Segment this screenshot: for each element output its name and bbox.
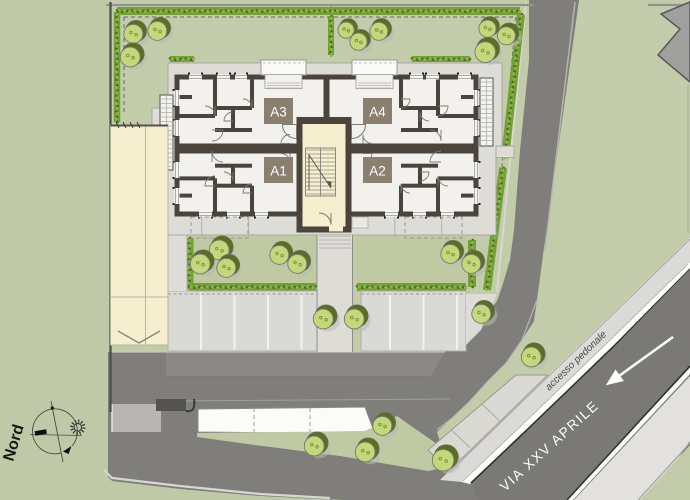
svg-text:A1: A1 bbox=[270, 164, 287, 179]
svg-text:A2: A2 bbox=[369, 164, 386, 179]
svg-text:A3: A3 bbox=[270, 105, 287, 120]
svg-text:A4: A4 bbox=[369, 105, 386, 120]
